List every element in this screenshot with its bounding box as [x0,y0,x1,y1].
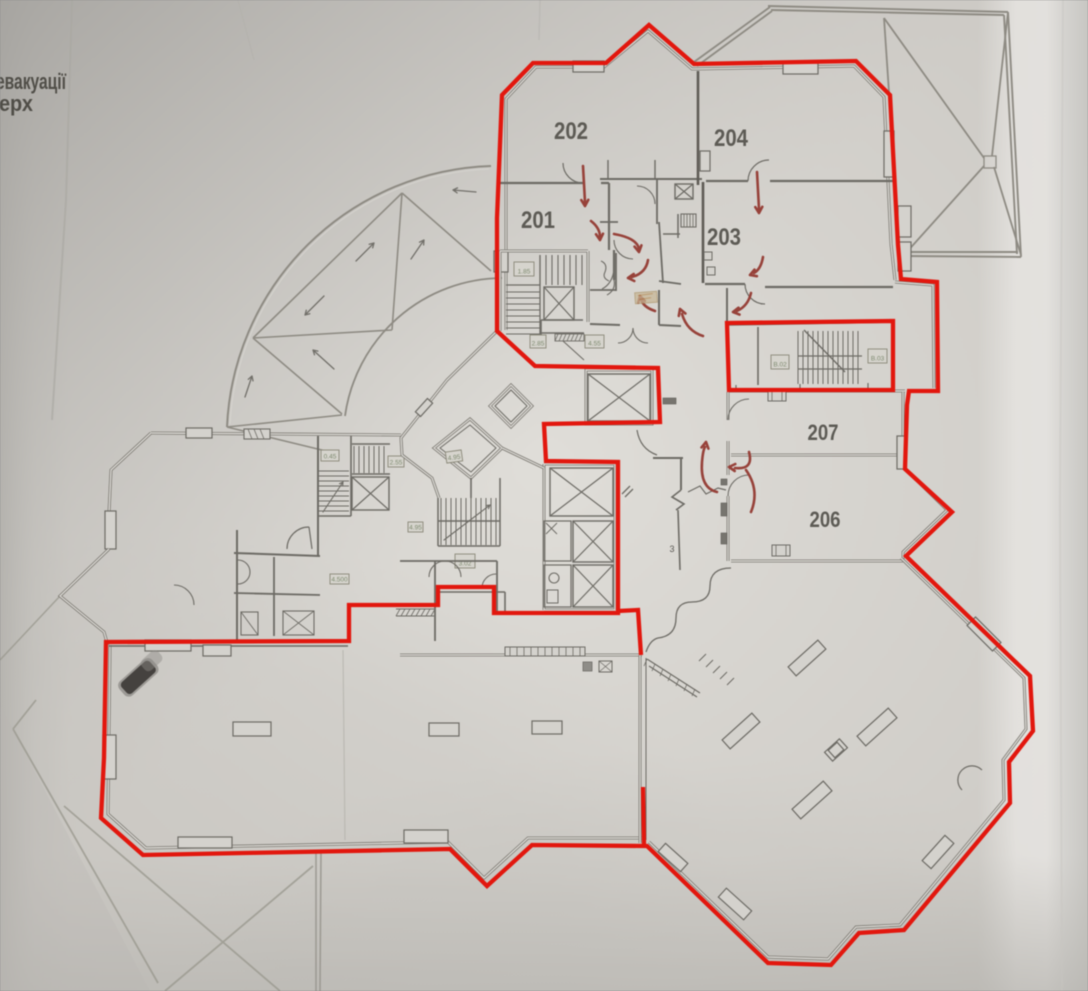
svg-text:4.95: 4.95 [409,525,422,532]
svg-text:1.85: 1.85 [518,269,531,276]
svg-text:4.500: 4.500 [331,577,348,584]
svg-text:0.45: 0.45 [324,454,337,461]
svg-text:201: 201 [521,207,555,234]
svg-text:207: 207 [808,420,839,445]
svg-text:2.55: 2.55 [390,460,403,467]
svg-text:206: 206 [810,507,841,532]
svg-text:204: 204 [714,125,749,152]
svg-text:3: 3 [669,544,674,554]
svg-text:202: 202 [554,118,588,145]
svg-text:4.55: 4.55 [588,341,601,348]
svg-text:B.03: B.03 [871,356,885,363]
svg-text:верх: верх [0,91,34,116]
svg-text:B.02: B.02 [773,362,787,369]
svg-text:2.85: 2.85 [532,341,545,348]
svg-text:203: 203 [707,224,741,251]
